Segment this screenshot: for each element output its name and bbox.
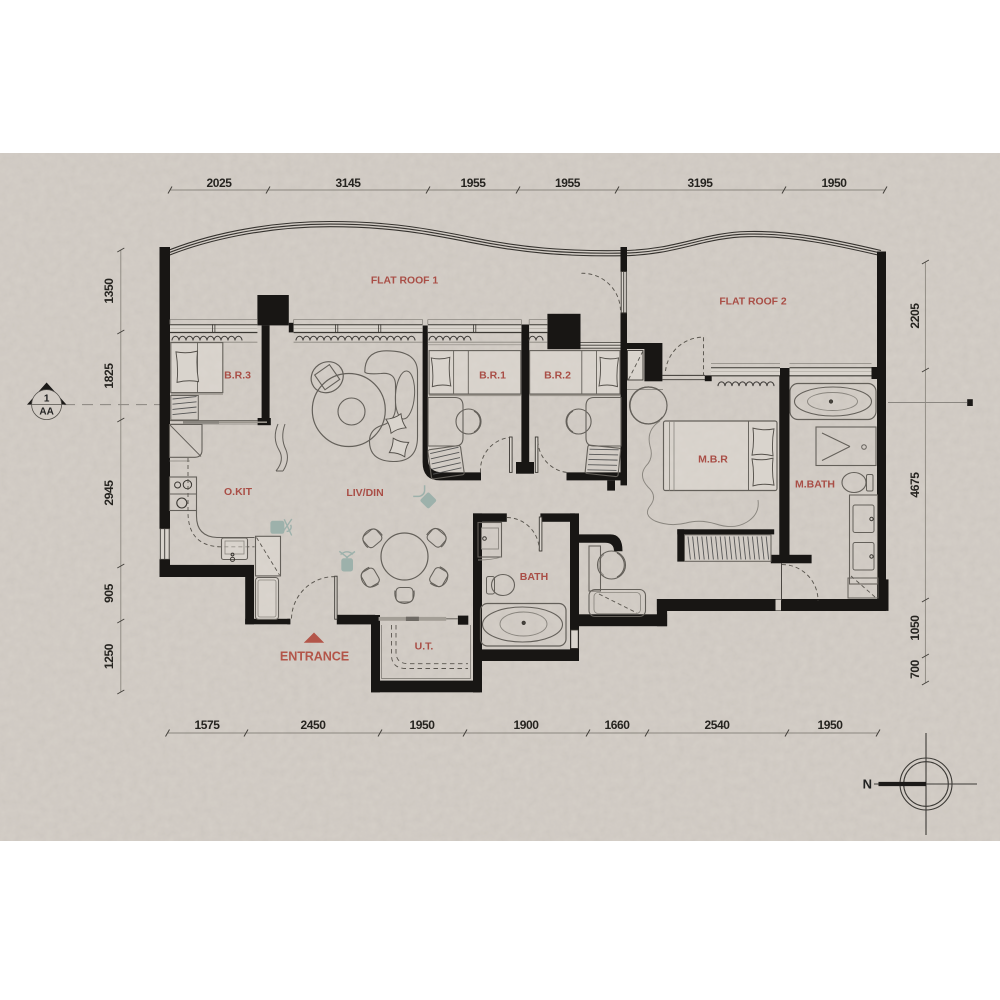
svg-text:1825: 1825 (102, 363, 116, 389)
svg-text:1950: 1950 (817, 718, 843, 732)
svg-text:FLAT ROOF 1: FLAT ROOF 1 (371, 276, 439, 287)
svg-text:2540: 2540 (704, 718, 730, 732)
svg-text:2945: 2945 (102, 480, 116, 506)
svg-text:1900: 1900 (513, 718, 539, 732)
svg-text:1050: 1050 (908, 615, 922, 641)
svg-text:ENTRANCE: ENTRANCE (280, 650, 349, 664)
svg-text:1955: 1955 (460, 176, 486, 190)
svg-text:1: 1 (44, 394, 50, 405)
svg-text:1950: 1950 (821, 176, 847, 190)
svg-text:2450: 2450 (300, 718, 326, 732)
svg-text:LIV/DIN: LIV/DIN (346, 487, 383, 499)
svg-text:M.B.R: M.B.R (698, 454, 728, 466)
svg-text:700: 700 (908, 659, 922, 679)
svg-text:4675: 4675 (908, 472, 922, 498)
svg-text:1250: 1250 (102, 643, 116, 669)
svg-text:B.R.2: B.R.2 (544, 370, 571, 382)
svg-text:1955: 1955 (555, 176, 581, 190)
svg-text:N: N (863, 777, 872, 792)
svg-text:M.BATH: M.BATH (795, 479, 835, 491)
svg-text:B.R.1: B.R.1 (479, 370, 506, 382)
svg-text:BATH: BATH (520, 571, 548, 583)
svg-text:1660: 1660 (604, 718, 630, 732)
svg-text:1950: 1950 (409, 718, 435, 732)
svg-text:B.R.3: B.R.3 (224, 370, 251, 382)
svg-text:1350: 1350 (102, 278, 116, 304)
svg-text:905: 905 (102, 583, 116, 603)
svg-text:2025: 2025 (206, 176, 232, 190)
svg-text:AA: AA (39, 407, 53, 418)
svg-text:3145: 3145 (335, 176, 361, 190)
svg-text:3195: 3195 (687, 176, 713, 190)
svg-text:1575: 1575 (194, 718, 220, 732)
svg-text:O.KIT: O.KIT (224, 486, 253, 498)
svg-text:U.T.: U.T. (415, 641, 434, 653)
svg-text:FLAT ROOF 2: FLAT ROOF 2 (719, 297, 787, 308)
svg-text:2205: 2205 (908, 303, 922, 329)
